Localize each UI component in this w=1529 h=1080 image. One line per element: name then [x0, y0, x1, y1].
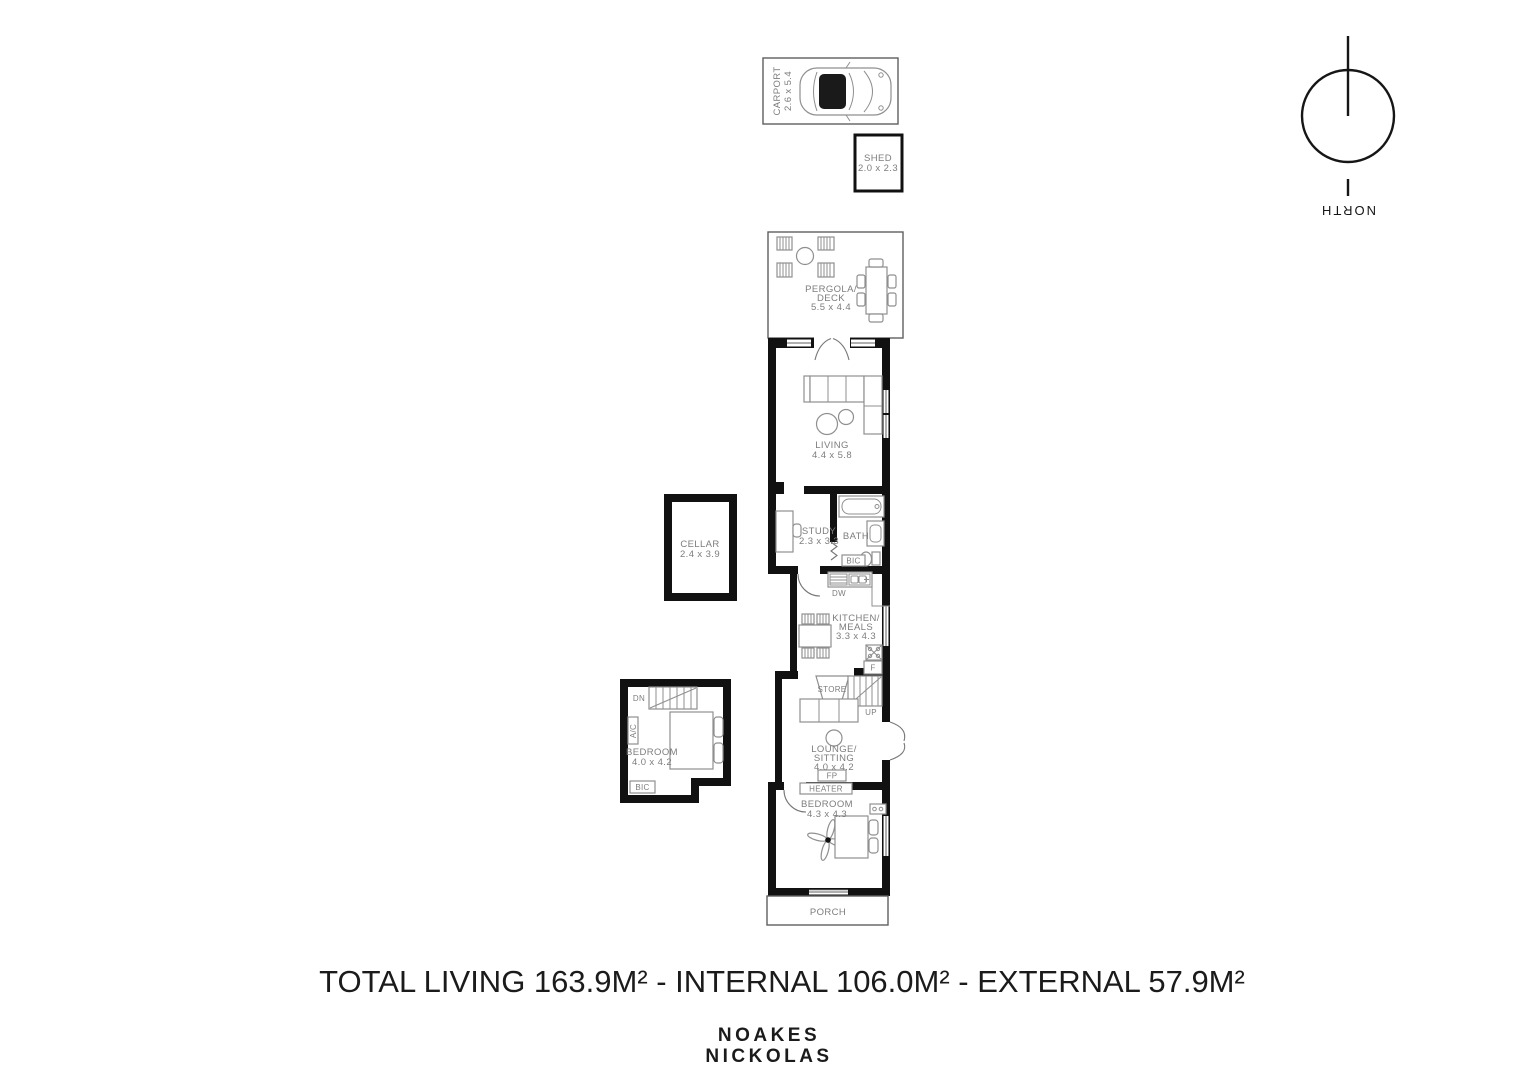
- bic-rear-label: BIC: [635, 783, 649, 792]
- bathtub-icon: [839, 496, 884, 517]
- north-label: NORTH: [1320, 203, 1376, 218]
- kitchen-door-icon: [798, 574, 820, 596]
- lounge-door-top-icon: [890, 722, 905, 741]
- room-shed: SHED 2.0 x 2.3: [855, 135, 902, 191]
- room-kitchen: DW F KITCHEN/ MEALS 3.3 x 4.3: [799, 572, 890, 674]
- stove-icon: [866, 645, 882, 660]
- living-dims: 4.4 x 5.8: [812, 450, 852, 461]
- outdoor-chairs-icon: [777, 237, 834, 277]
- side-table-icon: [839, 410, 854, 425]
- bedroom-front-dims: 4.3 x 4.3: [807, 809, 847, 820]
- outdoor-dining-table-icon: [857, 259, 896, 322]
- room-cellar: CELLAR 2.4 x 3.9: [664, 494, 737, 601]
- room-bedroom-front: BEDROOM 4.3 x 4.3: [801, 799, 886, 861]
- brand-line-2: NICKOLAS: [705, 1046, 832, 1067]
- room-study: STUDY 2.3 x 3.3: [776, 511, 839, 552]
- study-dims: 2.3 x 3.3: [799, 536, 839, 547]
- bedroom-rear-dims: 4.0 x 4.2: [632, 757, 672, 768]
- sink-icon: [828, 572, 872, 587]
- area-summary: TOTAL LIVING 163.9M² - INTERNAL 106.0M² …: [319, 964, 1245, 999]
- pergola-dims: 5.5 x 4.4: [811, 302, 851, 313]
- vanity-icon: [867, 521, 884, 546]
- meals-table-icon: [799, 614, 831, 658]
- carport-label: CARPORT: [772, 66, 783, 115]
- stairs-down-icon: [649, 687, 697, 709]
- room-bath: BIC BATH: [839, 496, 884, 566]
- lounge-sofa-icon: [800, 699, 858, 722]
- ac-label: A/C: [629, 724, 638, 738]
- porch-label: PORCH: [810, 907, 846, 918]
- car-icon: [800, 62, 891, 121]
- cellar-dims: 2.4 x 3.9: [680, 549, 720, 560]
- lounge-door-bottom-icon: [890, 743, 905, 760]
- sofa-icon: [804, 376, 882, 434]
- bic-label: BIC: [846, 557, 860, 566]
- north-arrow: NORTH: [1302, 36, 1394, 218]
- room-carport: CARPORT 2.6 x 5.4: [763, 58, 898, 124]
- carport-dims: 2.6 x 5.4: [783, 71, 794, 111]
- kitchen-dims: 3.3 x 4.3: [836, 631, 876, 642]
- store-label: STORE: [818, 685, 847, 694]
- up-label: UP: [865, 708, 877, 717]
- room-living: LIVING 4.4 x 5.8: [804, 376, 882, 461]
- lounge-dims: 4.0 x 4.2: [814, 762, 854, 773]
- floor-plan-page: CARPORT 2.6 x 5.4 SHED 2.0 x 2.3 NORTH: [0, 0, 1529, 1080]
- room-lounge: FP HEATER LOUNGE/ SITTING 4.0 x 4.2: [800, 699, 858, 794]
- dw-label: DW: [832, 589, 846, 598]
- fridge-label: F: [870, 664, 875, 673]
- heater-label: HEATER: [809, 785, 843, 794]
- room-porch: PORCH: [767, 896, 888, 925]
- room-bedroom-rear: DN A/C BIC BEDROOM 4.0 x 4.2: [620, 679, 731, 803]
- bath-label: BATH: [843, 531, 869, 542]
- coffee-table-icon: [817, 414, 838, 435]
- desk-icon: [776, 511, 793, 552]
- room-pergola: PERGOLA/ DECK 5.5 x 4.4: [768, 232, 903, 338]
- dn-label: DN: [633, 694, 645, 703]
- brand-line-1: NOAKES: [718, 1025, 820, 1046]
- shed-dims: 2.0 x 2.3: [858, 163, 898, 174]
- floor-plan-svg: CARPORT 2.6 x 5.4 SHED 2.0 x 2.3 NORTH: [0, 0, 1529, 1080]
